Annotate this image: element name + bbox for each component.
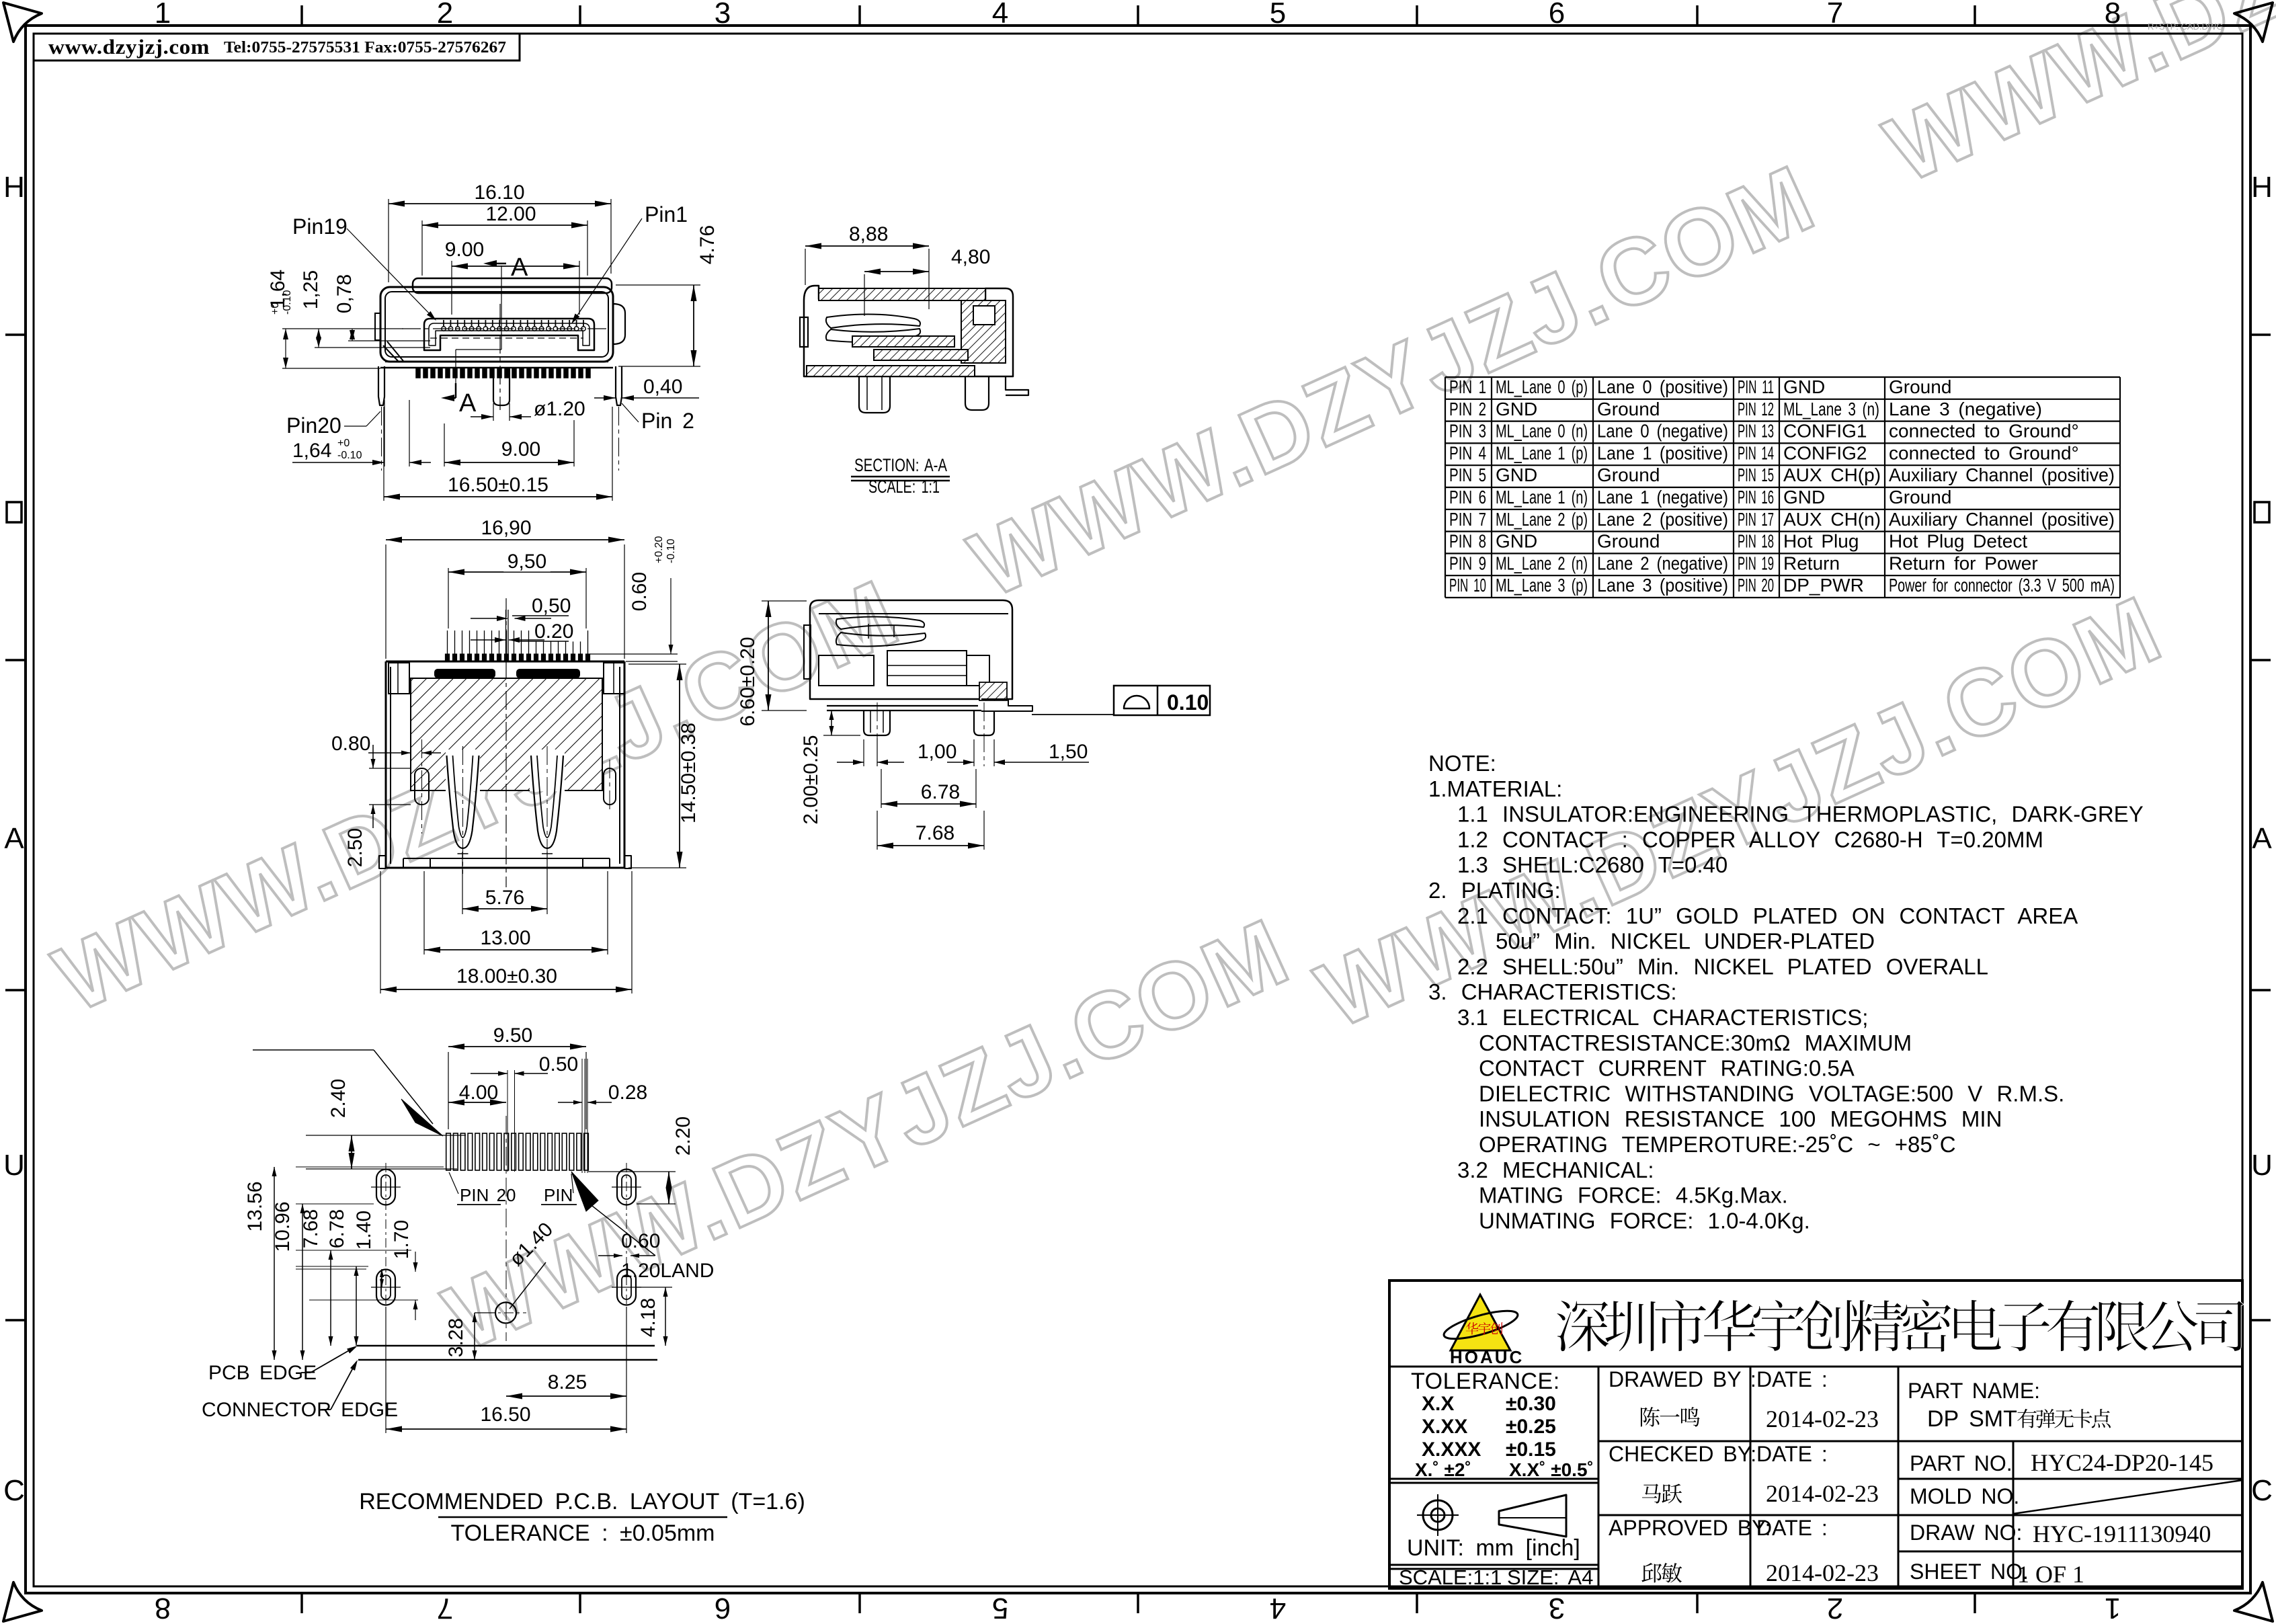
svg-text:0.20: 0.20 bbox=[534, 620, 573, 643]
svg-text:3.28: 3.28 bbox=[445, 1318, 467, 1357]
svg-text:2.20: 2.20 bbox=[672, 1116, 694, 1155]
svg-text:Ground: Ground bbox=[1597, 464, 1660, 485]
svg-text:2014-02-23: 2014-02-23 bbox=[1766, 1559, 1879, 1586]
svg-text:5: 5 bbox=[1270, 0, 1286, 30]
svg-text:PART NO.: PART NO. bbox=[1910, 1451, 2013, 1475]
svg-text:0.60: 0.60 bbox=[621, 1230, 660, 1252]
svg-text:6: 6 bbox=[1549, 0, 1565, 30]
svg-text:Lane 1 (negative): Lane 1 (negative) bbox=[1597, 487, 1728, 507]
svg-text:CONFIG1: CONFIG1 bbox=[1783, 421, 1867, 442]
svg-text:Hot Plug Detect: Hot Plug Detect bbox=[1889, 531, 2027, 552]
svg-text:X.X˚ ±0.5˚: X.X˚ ±0.5˚ bbox=[1509, 1459, 1594, 1480]
svg-text:2.40: 2.40 bbox=[327, 1079, 350, 1118]
svg-text:0,40: 0,40 bbox=[643, 376, 682, 398]
svg-text:Return: Return bbox=[1783, 553, 1840, 573]
svg-text:1.40: 1.40 bbox=[353, 1211, 375, 1250]
svg-text:14.50±0.38: 14.50±0.38 bbox=[678, 723, 700, 823]
svg-text:HYC-1911130940: HYC-1911130940 bbox=[2033, 1520, 2211, 1547]
svg-text:16.50±0.15: 16.50±0.15 bbox=[448, 474, 548, 496]
svg-text:Lane 3 (negative): Lane 3 (negative) bbox=[1889, 399, 2042, 419]
svg-text:DRAW NO:: DRAW NO: bbox=[1910, 1520, 2022, 1545]
svg-text:AUX CH(n): AUX CH(n) bbox=[1783, 509, 1881, 530]
svg-text:DATE :: DATE : bbox=[1756, 1516, 1828, 1540]
svg-text:Lane 2 (positive): Lane 2 (positive) bbox=[1597, 509, 1728, 530]
svg-text:4.18: 4.18 bbox=[637, 1298, 659, 1337]
svg-text:DP SMT: DP SMT bbox=[1927, 1406, 2017, 1432]
svg-text:X.X: X.X bbox=[1422, 1393, 1454, 1415]
svg-text:ø1.20: ø1.20 bbox=[534, 398, 585, 420]
svg-text:16.10: 16.10 bbox=[474, 181, 524, 204]
svg-text:H: H bbox=[3, 171, 25, 204]
svg-text:4: 4 bbox=[1270, 1592, 1286, 1624]
svg-text:Return for Power: Return for Power bbox=[1889, 553, 2038, 573]
svg-text:TOLERANCE:: TOLERANCE: bbox=[1411, 1369, 1560, 1394]
svg-text:GND: GND bbox=[1496, 531, 1537, 552]
svg-text:PIN 1: PIN 1 bbox=[544, 1185, 590, 1205]
svg-text:DRAWED BY :: DRAWED BY : bbox=[1609, 1367, 1756, 1391]
svg-text:PIN 7: PIN 7 bbox=[1449, 509, 1486, 530]
svg-text:2.00±0.25: 2.00±0.25 bbox=[800, 735, 822, 824]
svg-text:4: 4 bbox=[992, 0, 1008, 30]
svg-text:1: 1 bbox=[2105, 1592, 2121, 1624]
svg-text:PIN 5: PIN 5 bbox=[1449, 464, 1486, 485]
svg-text:Auxiliary Channel (positive): Auxiliary Channel (positive) bbox=[1889, 509, 2115, 530]
svg-text:2: 2 bbox=[437, 0, 453, 30]
svg-text:0,50: 0,50 bbox=[532, 595, 571, 617]
svg-text:8: 8 bbox=[155, 1592, 171, 1624]
svg-text:INSULATION RESISTANCE 100 MEGO: INSULATION RESISTANCE 100 MEGOHMS MIN bbox=[1479, 1106, 2002, 1131]
svg-text:A: A bbox=[459, 389, 477, 417]
svg-text:H: H bbox=[2251, 171, 2273, 204]
svg-text:Pin1: Pin1 bbox=[645, 202, 688, 227]
svg-text:±0.30: ±0.30 bbox=[1506, 1393, 1556, 1415]
svg-text:16.50: 16.50 bbox=[480, 1404, 530, 1426]
svg-text:Power for connector (3.3 V 500: Power for connector (3.3 V 500 mA) bbox=[1889, 575, 2115, 596]
svg-text:8.25: 8.25 bbox=[548, 1371, 587, 1393]
svg-text:PIN 3: PIN 3 bbox=[1449, 421, 1486, 442]
svg-text:OPERATING TEMPEROTURE:-25˚C ~: OPERATING TEMPEROTURE:-25˚C ~ +85˚C bbox=[1479, 1132, 1956, 1157]
svg-text:PIN 8: PIN 8 bbox=[1449, 531, 1486, 552]
svg-text:3: 3 bbox=[715, 0, 731, 30]
svg-text:-0.10: -0.10 bbox=[282, 290, 293, 315]
svg-text:ML_Lane 3 (n): ML_Lane 3 (n) bbox=[1783, 399, 1879, 419]
svg-text:6: 6 bbox=[715, 1592, 731, 1624]
svg-text:Pin19: Pin19 bbox=[292, 214, 348, 239]
svg-text:1.3 SHELL:C2680 T=0.40: 1.3 SHELL:C2680 T=0.40 bbox=[1457, 852, 1728, 877]
svg-text:Lane 0 (negative): Lane 0 (negative) bbox=[1597, 421, 1728, 442]
svg-text:APPROVED BY:: APPROVED BY: bbox=[1609, 1516, 1771, 1540]
svg-text:PIN 18: PIN 18 bbox=[1738, 531, 1774, 552]
svg-text:HOAUC: HOAUC bbox=[1450, 1347, 1524, 1367]
svg-text:PCB EDGE: PCB EDGE bbox=[208, 1362, 317, 1384]
svg-text:0,78: 0,78 bbox=[333, 274, 356, 313]
svg-text:9,50: 9,50 bbox=[507, 551, 546, 573]
svg-text:13.00: 13.00 bbox=[480, 927, 530, 949]
svg-text:3.2 MECHANICAL:: 3.2 MECHANICAL: bbox=[1457, 1158, 1654, 1182]
svg-text:Pin20: Pin20 bbox=[286, 413, 341, 438]
svg-text:PIN 20: PIN 20 bbox=[460, 1185, 516, 1205]
svg-text:PIN 9: PIN 9 bbox=[1449, 553, 1486, 573]
svg-text:2. PLATING:: 2. PLATING: bbox=[1428, 878, 1561, 903]
svg-text:MOLD NO.: MOLD NO. bbox=[1910, 1484, 2019, 1508]
svg-text:connected to Ground°: connected to Ground° bbox=[1889, 442, 2079, 463]
svg-text:9.00: 9.00 bbox=[501, 438, 540, 460]
svg-text:ML_Lane 1 (p): ML_Lane 1 (p) bbox=[1496, 442, 1588, 463]
svg-text:PIN 17: PIN 17 bbox=[1738, 509, 1774, 530]
svg-text:4,80: 4,80 bbox=[951, 246, 990, 268]
svg-text:SECTION: A-A: SECTION: A-A bbox=[854, 455, 947, 475]
svg-text:Lane 1 (positive): Lane 1 (positive) bbox=[1597, 442, 1728, 463]
svg-text:2.50: 2.50 bbox=[344, 828, 366, 867]
svg-text:ML_Lane 2 (p): ML_Lane 2 (p) bbox=[1496, 509, 1588, 530]
svg-text:PIN 16: PIN 16 bbox=[1738, 487, 1774, 507]
svg-text:-0.10: -0.10 bbox=[337, 450, 362, 461]
svg-text:DATE :: DATE : bbox=[1756, 1442, 1828, 1466]
svg-text:1.MATERIAL:: 1.MATERIAL: bbox=[1428, 776, 1562, 801]
svg-text:PIN 6: PIN 6 bbox=[1449, 487, 1486, 507]
svg-text:1: 1 bbox=[155, 0, 171, 30]
svg-text:PART NAME:: PART NAME: bbox=[1908, 1379, 2040, 1403]
svg-text:DP_PWR: DP_PWR bbox=[1783, 575, 1864, 596]
svg-text:PIN 13: PIN 13 bbox=[1738, 421, 1774, 442]
svg-text:1,64: 1,64 bbox=[292, 440, 331, 462]
svg-text:PIN 11: PIN 11 bbox=[1738, 376, 1774, 397]
svg-text:1.20LAND: 1.20LAND bbox=[621, 1260, 714, 1282]
svg-text:Pin 2: Pin 2 bbox=[641, 409, 694, 433]
svg-text:RECOMMENDED P.C.B. LAYOUT (T=1: RECOMMENDED P.C.B. LAYOUT (T=1.6) bbox=[359, 1489, 805, 1514]
svg-text:A: A bbox=[4, 822, 24, 855]
svg-text:C: C bbox=[3, 1474, 25, 1507]
svg-text:5: 5 bbox=[992, 1592, 1008, 1624]
svg-text:Ground: Ground bbox=[1889, 376, 1951, 397]
svg-text:2: 2 bbox=[1827, 1592, 1843, 1624]
svg-text:0.28: 0.28 bbox=[608, 1082, 647, 1104]
svg-text:10.96: 10.96 bbox=[272, 1201, 294, 1252]
svg-text:2014-02-23: 2014-02-23 bbox=[1766, 1406, 1879, 1432]
svg-text:5.76: 5.76 bbox=[485, 887, 524, 909]
svg-text:Lane 2 (negative): Lane 2 (negative) bbox=[1597, 553, 1728, 573]
svg-text:0.60: 0.60 bbox=[628, 572, 651, 611]
svg-text:Lane 0 (positive): Lane 0 (positive) bbox=[1597, 376, 1728, 397]
svg-text:MATING FORCE: 4.5Kg.Max.: MATING FORCE: 4.5Kg.Max. bbox=[1479, 1183, 1788, 1208]
svg-text:9.00: 9.00 bbox=[445, 239, 484, 261]
svg-text:PIN 10: PIN 10 bbox=[1449, 575, 1486, 596]
svg-text:12.00: 12.00 bbox=[485, 203, 536, 225]
svg-text:4.76: 4.76 bbox=[696, 225, 719, 264]
svg-text:16,90: 16,90 bbox=[481, 517, 531, 539]
svg-text:NOTE:: NOTE: bbox=[1428, 751, 1496, 776]
svg-text:PIN 12: PIN 12 bbox=[1738, 399, 1774, 419]
svg-text:ML_Lane 2 (n): ML_Lane 2 (n) bbox=[1496, 553, 1588, 573]
svg-text:DIELECTRIC WITHSTANDING VOLTAG: DIELECTRIC WITHSTANDING VOLTAGE:500 V R.… bbox=[1479, 1081, 2064, 1106]
svg-text:7.68: 7.68 bbox=[916, 822, 954, 844]
svg-text:www.dzyjzj.com: www.dzyjzj.com bbox=[48, 35, 210, 58]
svg-text:U: U bbox=[2251, 1149, 2273, 1182]
svg-text:ML_Lane 0 (p): ML_Lane 0 (p) bbox=[1496, 376, 1588, 397]
svg-text:GND: GND bbox=[1496, 399, 1537, 419]
svg-text:GND: GND bbox=[1783, 487, 1825, 507]
svg-text:connected to Ground°: connected to Ground° bbox=[1889, 421, 2079, 442]
svg-text:+0.20: +0.20 bbox=[653, 536, 665, 563]
svg-text:SCALE: 1:1: SCALE: 1:1 bbox=[868, 477, 940, 497]
svg-text:X.˚ ±2˚: X.˚ ±2˚ bbox=[1415, 1459, 1471, 1480]
svg-text:ML_Lane 1 (n): ML_Lane 1 (n) bbox=[1496, 487, 1588, 507]
svg-text:7: 7 bbox=[437, 1592, 453, 1624]
svg-text:8,88: 8,88 bbox=[849, 223, 888, 245]
svg-text:SHEET NO.: SHEET NO. bbox=[1910, 1559, 2029, 1584]
svg-text:GND: GND bbox=[1496, 464, 1537, 485]
svg-text:7.68: 7.68 bbox=[300, 1209, 322, 1248]
svg-text:-0.10: -0.10 bbox=[665, 538, 677, 563]
svg-text:6.78: 6.78 bbox=[326, 1209, 348, 1248]
svg-text:CONFIG2: CONFIG2 bbox=[1783, 442, 1867, 463]
svg-text:AUX CH(p): AUX CH(p) bbox=[1783, 464, 1881, 485]
svg-text:C: C bbox=[2251, 1474, 2273, 1507]
svg-text:UNMATING FORCE: 1.0-4.0Kg.: UNMATING FORCE: 1.0-4.0Kg. bbox=[1479, 1208, 1810, 1233]
svg-text:PIN 15: PIN 15 bbox=[1738, 464, 1774, 485]
svg-text:Lane 3 (positive): Lane 3 (positive) bbox=[1597, 575, 1728, 596]
svg-text:1,00: 1,00 bbox=[918, 741, 957, 763]
svg-text:8: 8 bbox=[2105, 0, 2121, 30]
svg-text:9.50: 9.50 bbox=[493, 1024, 532, 1047]
svg-text:2014-02-23: 2014-02-23 bbox=[1766, 1480, 1879, 1507]
svg-text:6.78: 6.78 bbox=[921, 781, 960, 803]
svg-text:PIN 2: PIN 2 bbox=[1449, 399, 1486, 419]
svg-text:Auxiliary Channel (positive): Auxiliary Channel (positive) bbox=[1889, 464, 2115, 485]
svg-text:±0.25: ±0.25 bbox=[1506, 1416, 1556, 1438]
svg-text:PIN 4: PIN 4 bbox=[1449, 442, 1486, 463]
svg-text:X.XXX: X.XXX bbox=[1422, 1438, 1481, 1461]
svg-text:Ground: Ground bbox=[1597, 399, 1660, 419]
svg-text:PIN 20: PIN 20 bbox=[1738, 575, 1774, 596]
svg-text:DATE :: DATE : bbox=[1756, 1367, 1828, 1391]
svg-text:3.1 ELECTRICAL CHARACTERISTICS: 3.1 ELECTRICAL CHARACTERISTICS; bbox=[1457, 1005, 1868, 1030]
svg-text:U: U bbox=[3, 1149, 25, 1182]
svg-text:+0: +0 bbox=[270, 302, 281, 315]
svg-text:13.56: 13.56 bbox=[244, 1181, 266, 1231]
svg-text:Hot Plug: Hot Plug bbox=[1783, 531, 1859, 552]
svg-text:0.80: 0.80 bbox=[331, 733, 370, 755]
svg-text:CONTACT CURRENT RATING:0.5A: CONTACT CURRENT RATING:0.5A bbox=[1479, 1056, 1855, 1081]
svg-text:2.1 CONTACT: 1U” GOLD PLATED O: 2.1 CONTACT: 1U” GOLD PLATED ON CONTACT … bbox=[1457, 903, 2078, 928]
svg-text:Ground: Ground bbox=[1889, 487, 1951, 507]
svg-text:X.XX: X.XX bbox=[1422, 1416, 1467, 1438]
svg-text:CONNECTOR EDGE: CONNECTOR EDGE bbox=[202, 1399, 398, 1421]
svg-text:50u” Min. NICKEL UNDER-PLATED: 50u” Min. NICKEL UNDER-PLATED bbox=[1496, 929, 1875, 954]
svg-text:3: 3 bbox=[1549, 1592, 1565, 1624]
svg-text:1.2 CONTACT : COPPER ALLOY C26: 1.2 CONTACT : COPPER ALLOY C2680-H T=0.2… bbox=[1457, 827, 2043, 852]
svg-text:Ground: Ground bbox=[1597, 531, 1660, 552]
svg-text:A: A bbox=[511, 253, 528, 282]
svg-text:18.00±0.30: 18.00±0.30 bbox=[456, 965, 557, 987]
svg-text:1,50: 1,50 bbox=[1049, 741, 1088, 763]
svg-text:4.00: 4.00 bbox=[459, 1082, 498, 1104]
svg-text:HYC24-DP20-145: HYC24-DP20-145 bbox=[2031, 1449, 2213, 1476]
svg-text:2.2 SHELL:50u” Min. NICKEL PLA: 2.2 SHELL:50u” Min. NICKEL PLATED OVERAL… bbox=[1457, 954, 1988, 979]
svg-text:A: A bbox=[2252, 822, 2272, 855]
svg-text:CHECKED BY:: CHECKED BY: bbox=[1609, 1442, 1756, 1466]
svg-text:3. CHARACTERISTICS:: 3. CHARACTERISTICS: bbox=[1428, 979, 1677, 1004]
svg-text:1.70: 1.70 bbox=[391, 1220, 413, 1259]
svg-text:±0.15: ±0.15 bbox=[1506, 1438, 1556, 1461]
svg-text:Tel:0755-27575531 Fax:0755-27: Tel:0755-27575531 Fax:0755-27576267 bbox=[224, 39, 506, 56]
svg-text:SIZE: A4: SIZE: A4 bbox=[1507, 1566, 1593, 1589]
svg-text:PIN 14: PIN 14 bbox=[1738, 442, 1774, 463]
svg-text:TOLERANCE : ±0.05mm: TOLERANCE : ±0.05mm bbox=[450, 1520, 715, 1546]
svg-text:1 OF 1: 1 OF 1 bbox=[2017, 1561, 2084, 1588]
svg-text:GND: GND bbox=[1783, 376, 1825, 397]
svg-text:1.1 INSULATOR:ENGINEERING THER: 1.1 INSULATOR:ENGINEERING THERMOPLASTIC,… bbox=[1457, 802, 2144, 827]
svg-text:ML_Lane 3 (p): ML_Lane 3 (p) bbox=[1496, 575, 1588, 596]
svg-text:0.10: 0.10 bbox=[1167, 690, 1209, 715]
svg-text:SCALE:1:1: SCALE:1:1 bbox=[1399, 1566, 1502, 1589]
svg-text:+0: +0 bbox=[337, 438, 350, 449]
svg-text:0.50: 0.50 bbox=[539, 1053, 578, 1075]
svg-text:PIN 19: PIN 19 bbox=[1738, 553, 1774, 573]
svg-text:UNIT: mm [inch]: UNIT: mm [inch] bbox=[1407, 1535, 1580, 1561]
svg-text:CONTACTRESISTANCE:30mΩ MAXIMUM: CONTACTRESISTANCE:30mΩ MAXIMUM bbox=[1479, 1030, 1912, 1055]
svg-text:6.60±0.20: 6.60±0.20 bbox=[737, 637, 759, 726]
svg-text:1,25: 1,25 bbox=[300, 270, 322, 309]
svg-text:R+STP: CAD.DWG: R+STP: CAD.DWG bbox=[2148, 22, 2223, 32]
svg-text:PIN 1: PIN 1 bbox=[1449, 376, 1486, 397]
svg-text:ML_Lane 0 (n): ML_Lane 0 (n) bbox=[1496, 421, 1588, 442]
svg-text:7: 7 bbox=[1827, 0, 1843, 30]
